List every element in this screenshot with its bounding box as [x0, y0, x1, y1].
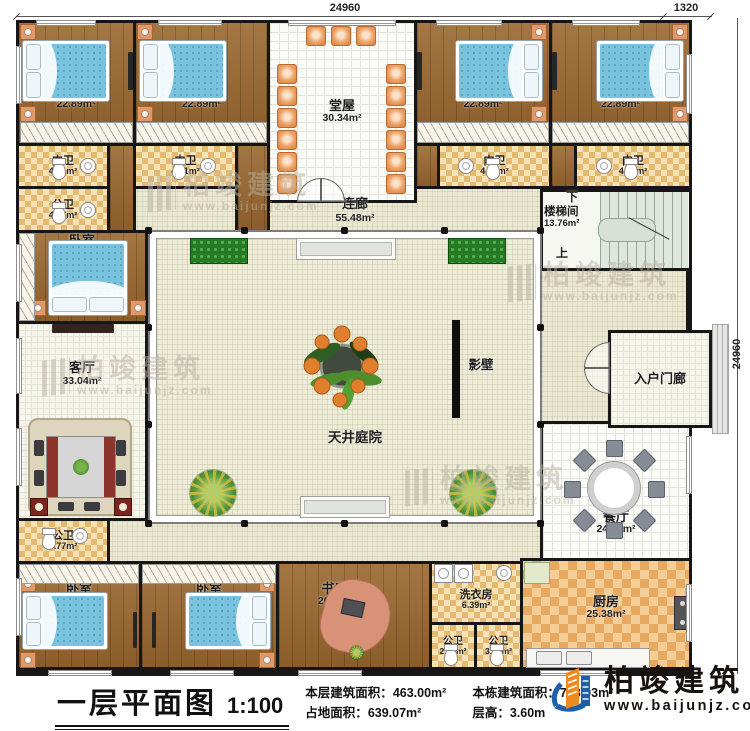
seat-cushion [277, 108, 297, 128]
column [341, 520, 348, 527]
seat-cushion [277, 152, 297, 172]
dining-chair [606, 440, 623, 457]
column [341, 227, 348, 234]
brand-url: www.baijunjz.com [604, 698, 750, 714]
brand-name: 柏竣建筑 [604, 666, 750, 698]
sofa-cushion [116, 470, 126, 486]
dimension-right: 24960 [731, 324, 743, 384]
stair-up-label: 上 [552, 247, 572, 261]
stair-landing [598, 218, 656, 242]
tv-panel [133, 612, 137, 648]
seat-cushion [277, 174, 297, 194]
tv-panel [128, 52, 133, 90]
room-label: 客厅33.04m² [19, 362, 145, 388]
tv-cabinet [52, 324, 114, 333]
stat-floor-area: 本层建筑面积：463.00m² [305, 684, 446, 703]
nightstand [531, 24, 547, 40]
toilet [172, 162, 186, 180]
column [537, 227, 544, 234]
nightstand [672, 24, 688, 40]
column [241, 520, 248, 527]
room-label: 入户门廊 [611, 372, 709, 386]
bench [300, 496, 390, 518]
wardrobe [142, 564, 276, 584]
planter-strip [190, 238, 248, 264]
column [145, 421, 152, 428]
bed [455, 40, 543, 102]
room-entrance-porch: 入户门廊 [608, 330, 712, 428]
bed [139, 40, 227, 102]
seat-cushion [277, 64, 297, 84]
planter-strip [448, 238, 506, 264]
wardrobe [417, 122, 549, 143]
window [158, 20, 222, 26]
window [16, 46, 22, 104]
tv-panel [152, 612, 156, 648]
toilet [490, 648, 504, 666]
nightstand [259, 652, 275, 668]
column [145, 227, 152, 234]
sofa-cushion [58, 502, 74, 511]
window [686, 436, 692, 494]
tv-panel [552, 52, 557, 90]
bed [22, 40, 110, 102]
dimension-top-right: 1320 [662, 2, 710, 14]
sink-basin [458, 158, 474, 174]
nightstand [137, 106, 153, 122]
round-plant [450, 470, 496, 516]
plan-title-text: 一层平面图 [57, 680, 217, 722]
washing-machine [454, 564, 473, 583]
seat-cushion [331, 26, 351, 46]
toilet [52, 206, 66, 224]
dimension-line-top [16, 16, 712, 17]
window [572, 20, 640, 26]
wardrobe [19, 564, 139, 584]
desk-plant [350, 646, 363, 659]
plan-title: 一层平面图 1:100 [55, 680, 289, 727]
nightstand [20, 652, 36, 668]
toilet [52, 162, 66, 180]
sink-basin [596, 158, 612, 174]
sink-basin [496, 565, 512, 581]
nightstand [20, 24, 36, 40]
room-public-bath-2: 公卫4.77m² [16, 518, 110, 564]
toilet [624, 162, 638, 180]
window [686, 584, 692, 642]
nightstand [531, 106, 547, 122]
nightstand [137, 24, 153, 40]
room-label: 厨房25.38m² [523, 595, 689, 621]
room-label-stairwell: 楼梯间13.76m² [541, 206, 604, 230]
bed [185, 592, 271, 650]
sofa-cushion [34, 470, 44, 486]
column [241, 227, 248, 234]
screen-wall [452, 320, 460, 418]
tv-panel [417, 52, 422, 90]
dining-table [588, 462, 640, 514]
stat-footprint-area: 占地面积：639.07m² [305, 704, 446, 723]
seat-cushion [386, 174, 406, 194]
hallway [235, 143, 270, 233]
dining-chair [648, 481, 665, 498]
nightstand [130, 300, 146, 316]
room-label: 公卫4.77m² [19, 530, 107, 552]
sofa-cushion [84, 502, 100, 511]
hallway [549, 143, 577, 189]
sink-basin [80, 202, 96, 218]
floor-plan-canvas: 24960 1320 24960 卧室22.89m² 卧室22.89m² 堂屋3… [0, 0, 750, 731]
courtyard-tree [298, 320, 386, 412]
column [441, 520, 448, 527]
toilet [486, 162, 500, 180]
plan-scale: 1:100 [227, 693, 283, 719]
stats-column-1: 本层建筑面积：463.00m² 占地面积：639.07m² [305, 684, 446, 723]
seat-cushion [356, 26, 376, 46]
kitchen-stove [524, 562, 550, 584]
dining-chair [606, 522, 623, 539]
sink-basin [200, 158, 216, 174]
stair-down-label: 下 [562, 191, 582, 205]
screen-wall-label: 影壁 [464, 358, 498, 372]
entrance-steps [712, 324, 729, 434]
column [441, 227, 448, 234]
seat-cushion [386, 130, 406, 150]
dining-chair [564, 481, 581, 498]
seat-cushion [306, 26, 326, 46]
seat-cushion [277, 130, 297, 150]
wardrobe [20, 122, 133, 143]
window [16, 244, 22, 302]
sofa-cushion [116, 440, 126, 456]
rug [46, 436, 116, 498]
window [16, 578, 22, 636]
wardrobe [552, 122, 689, 143]
toilet [444, 648, 458, 666]
window [16, 428, 22, 486]
seat-cushion [386, 108, 406, 128]
dimension-tick [707, 13, 714, 20]
kitchen-sink [566, 651, 592, 665]
room-label: 洗衣房6.39m² [432, 589, 520, 611]
brand-logo: 柏竣建筑 www.baijunjz.com [548, 664, 750, 716]
washing-machine [434, 564, 453, 583]
dimension-top: 24960 [310, 2, 380, 14]
window [436, 20, 502, 26]
window [686, 54, 692, 114]
room-ensuite-bath-2: 内卫4.71m² [133, 143, 238, 189]
column [537, 520, 544, 527]
seat-cushion [277, 86, 297, 106]
seat-cushion [386, 152, 406, 172]
kitchen-sink [536, 651, 562, 665]
side-table [114, 498, 132, 516]
nightstand [20, 106, 36, 122]
toilet [42, 532, 56, 550]
bench [296, 238, 396, 260]
window [288, 20, 396, 26]
brand-logo-icon [548, 664, 596, 716]
window [16, 338, 22, 394]
seat-cushion [386, 86, 406, 106]
column [145, 520, 152, 527]
bed [22, 592, 108, 650]
column [537, 421, 544, 428]
bed [596, 40, 684, 102]
seat-cushion [386, 64, 406, 84]
courtyard-label: 天井庭院 [310, 430, 400, 446]
bed [48, 240, 128, 316]
window [36, 20, 96, 26]
hallway [107, 143, 136, 233]
sink-basin [80, 158, 96, 174]
round-plant [190, 470, 236, 516]
wardrobe [136, 122, 267, 143]
side-table [30, 498, 48, 516]
sofa-cushion [34, 440, 44, 456]
column [145, 324, 152, 331]
brand-logo-text: 柏竣建筑 www.baijunjz.com [604, 666, 750, 714]
column [537, 324, 544, 331]
sink-basin [72, 528, 88, 544]
